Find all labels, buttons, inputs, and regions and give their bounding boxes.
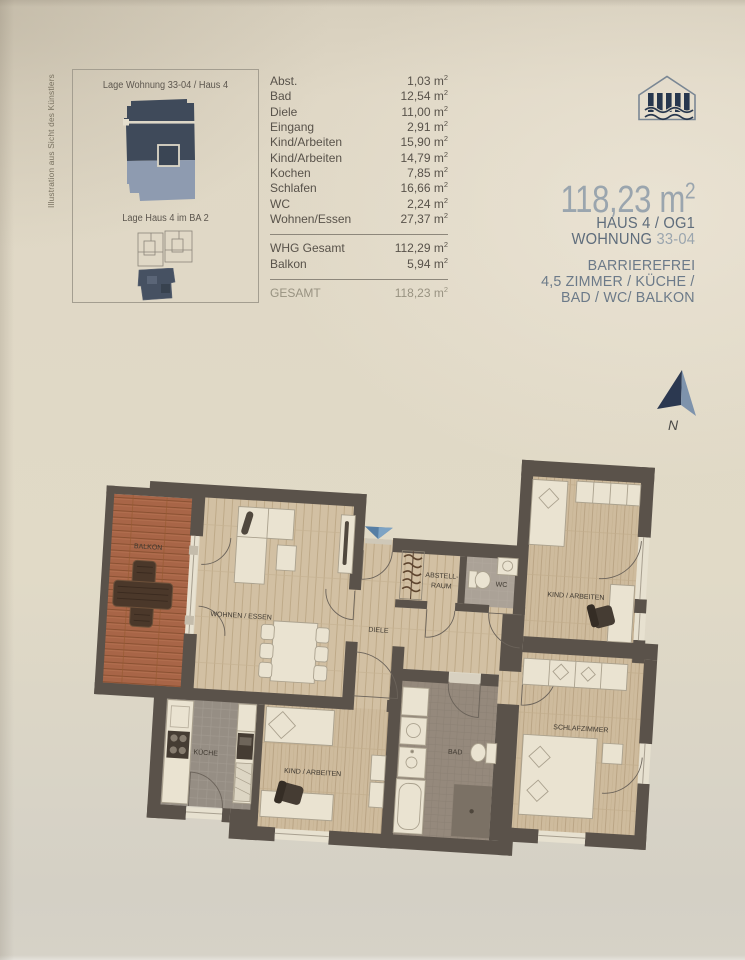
svg-text:DIELE: DIELE: [368, 627, 389, 635]
svg-text:KÜCHE: KÜCHE: [193, 748, 218, 758]
svg-text:WC: WC: [495, 581, 507, 589]
svg-text:BAD: BAD: [448, 749, 463, 757]
svg-text:RAUM: RAUM: [431, 582, 452, 590]
